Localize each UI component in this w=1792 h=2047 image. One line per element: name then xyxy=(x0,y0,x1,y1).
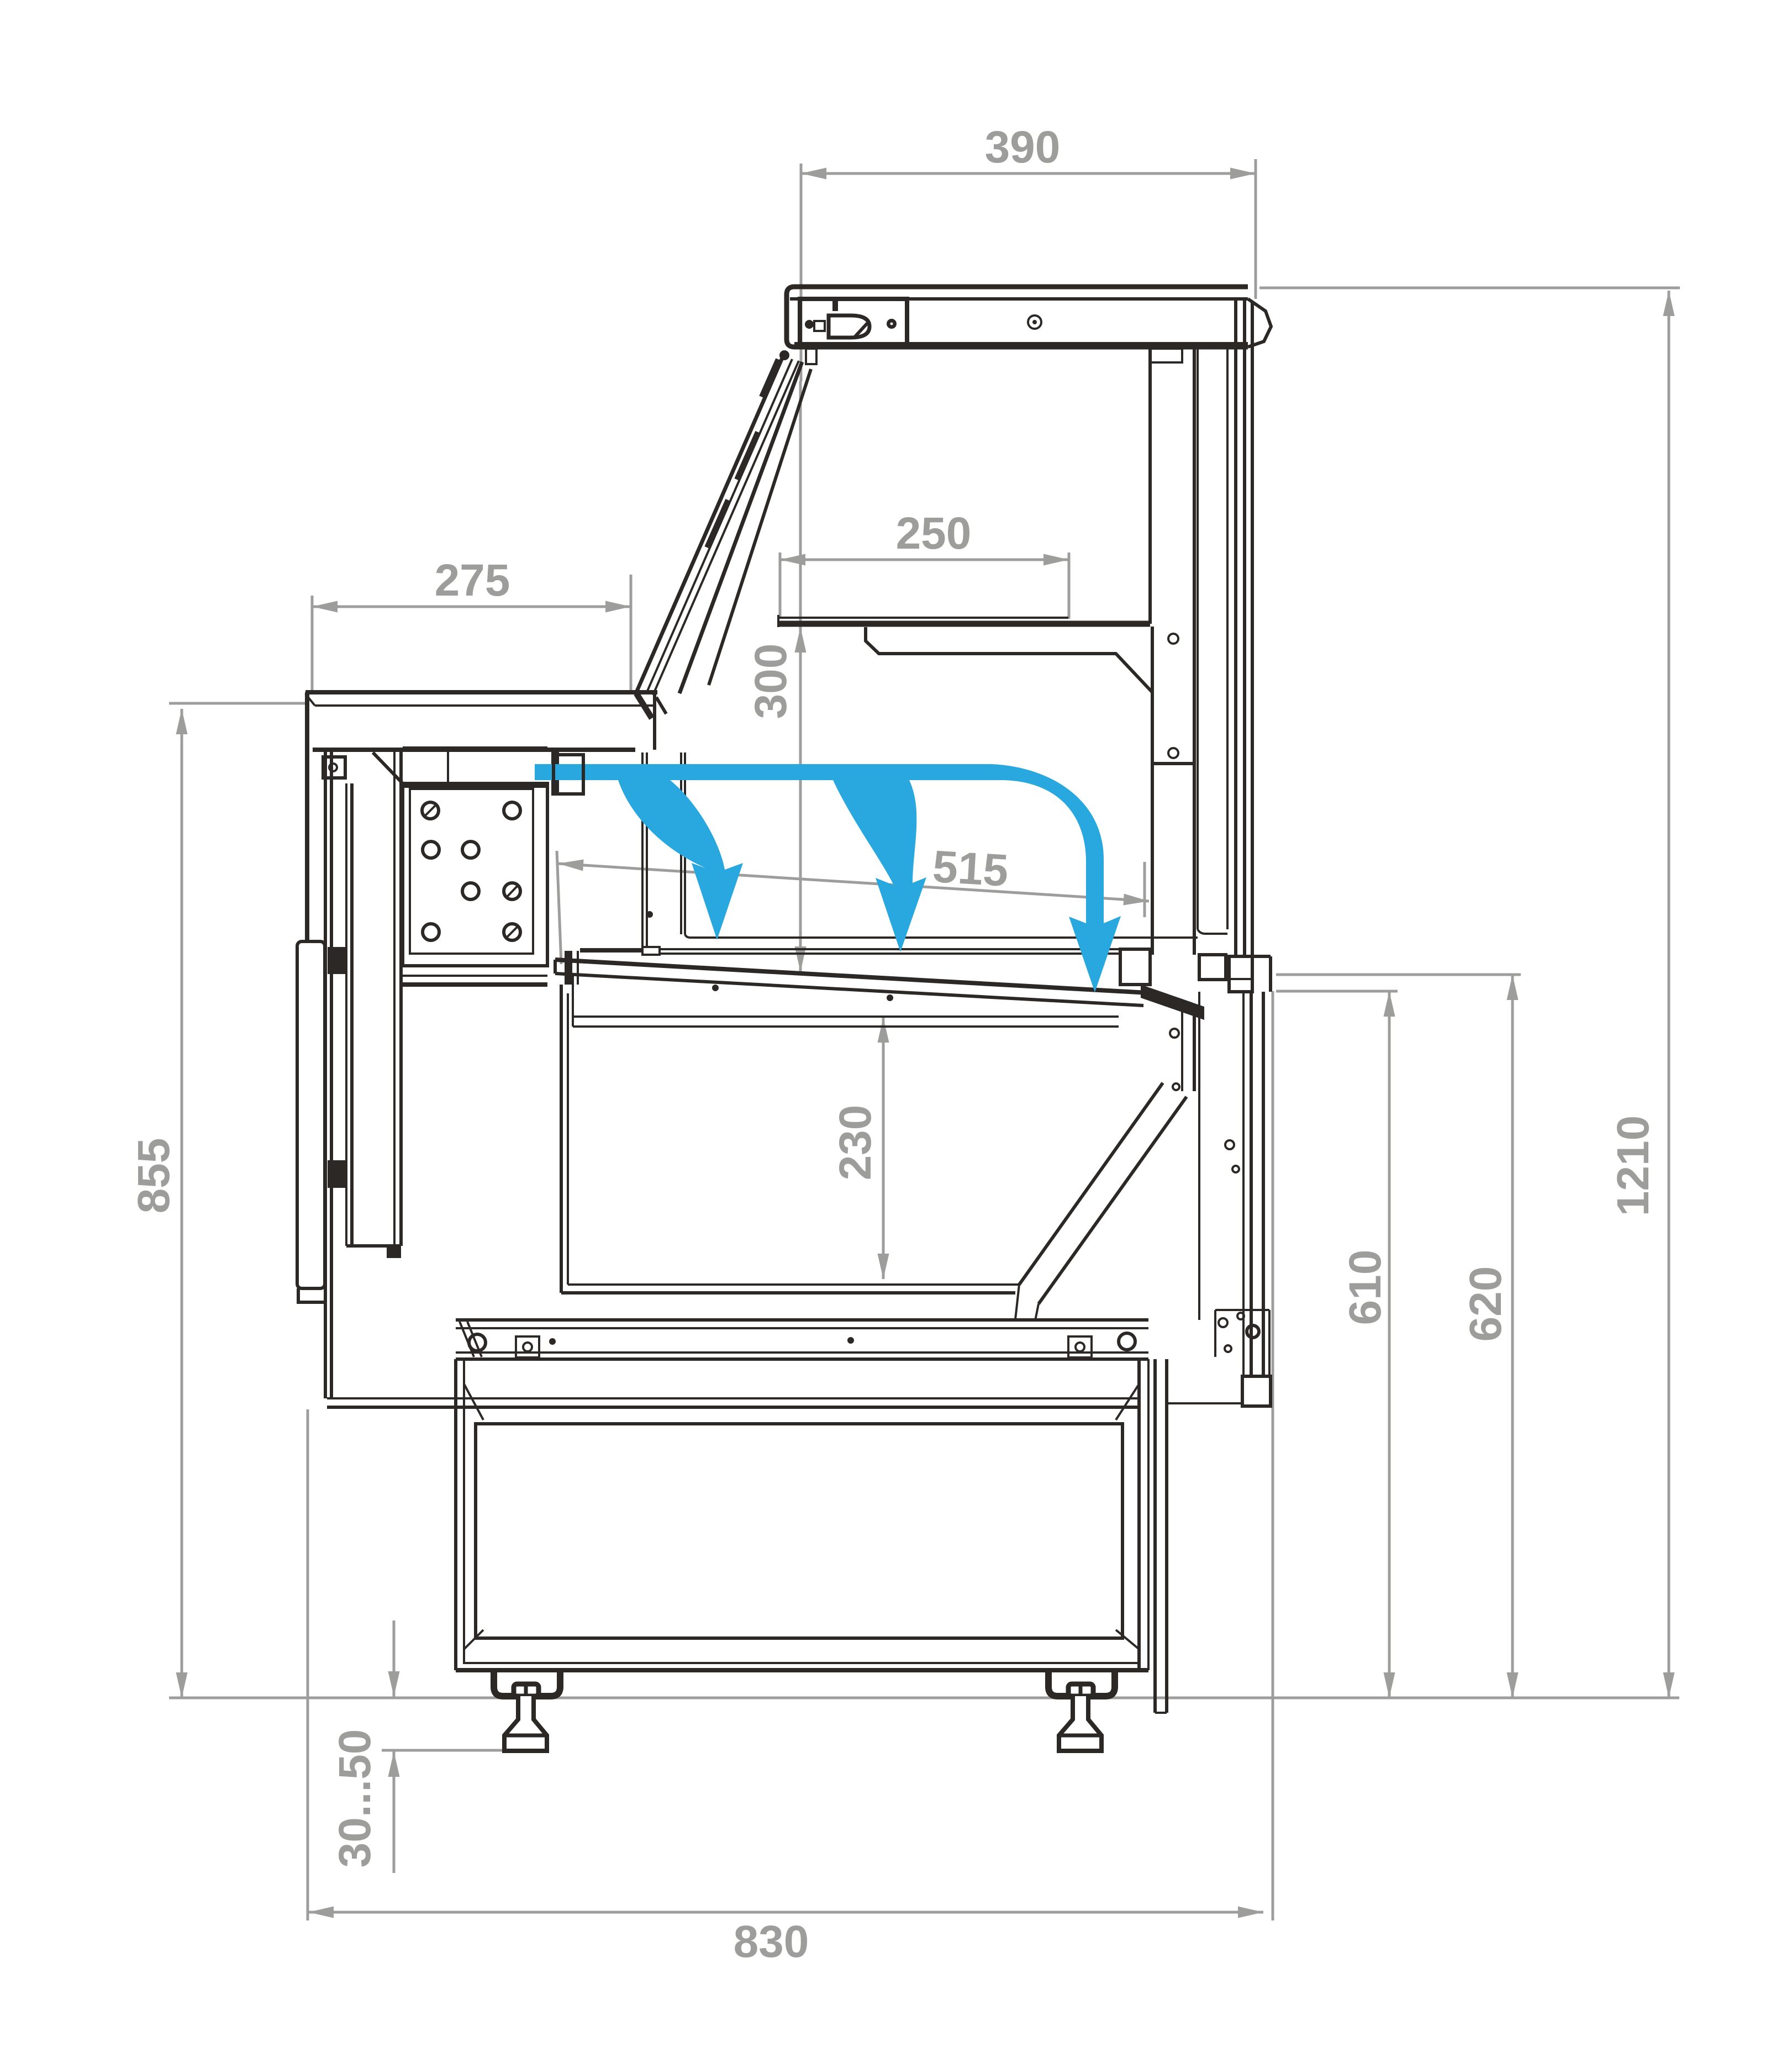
svg-text:620: 620 xyxy=(1461,1266,1511,1342)
svg-text:390: 390 xyxy=(985,122,1061,172)
svg-text:515: 515 xyxy=(931,841,1010,896)
svg-text:830: 830 xyxy=(734,1917,809,1967)
svg-text:30...50: 30...50 xyxy=(330,1729,380,1868)
svg-text:230: 230 xyxy=(830,1105,881,1181)
svg-text:250: 250 xyxy=(896,508,972,559)
svg-text:610: 610 xyxy=(1340,1250,1390,1325)
svg-text:1210: 1210 xyxy=(1608,1115,1658,1216)
svg-text:275: 275 xyxy=(435,555,510,606)
svg-text:855: 855 xyxy=(129,1138,179,1214)
svg-text:300: 300 xyxy=(746,644,796,719)
